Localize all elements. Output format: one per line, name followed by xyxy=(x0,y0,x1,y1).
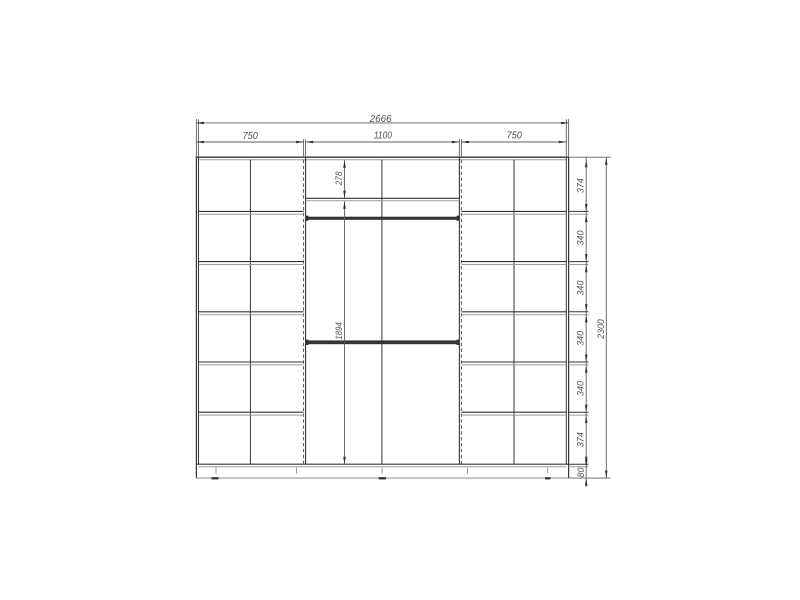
svg-text:80: 80 xyxy=(576,467,587,478)
svg-text:340: 340 xyxy=(576,330,587,346)
svg-text:340: 340 xyxy=(576,230,587,246)
svg-text:750: 750 xyxy=(506,131,522,142)
svg-text:374: 374 xyxy=(576,432,587,447)
svg-text:374: 374 xyxy=(576,178,587,193)
svg-text:750: 750 xyxy=(242,131,258,142)
svg-text:1894: 1894 xyxy=(334,322,345,340)
svg-text:2300: 2300 xyxy=(596,319,607,340)
svg-text:1100: 1100 xyxy=(374,131,392,142)
svg-text:340: 340 xyxy=(576,280,587,296)
svg-text:278: 278 xyxy=(334,171,345,187)
svg-text:2666: 2666 xyxy=(369,114,392,125)
svg-text:340: 340 xyxy=(576,380,587,396)
